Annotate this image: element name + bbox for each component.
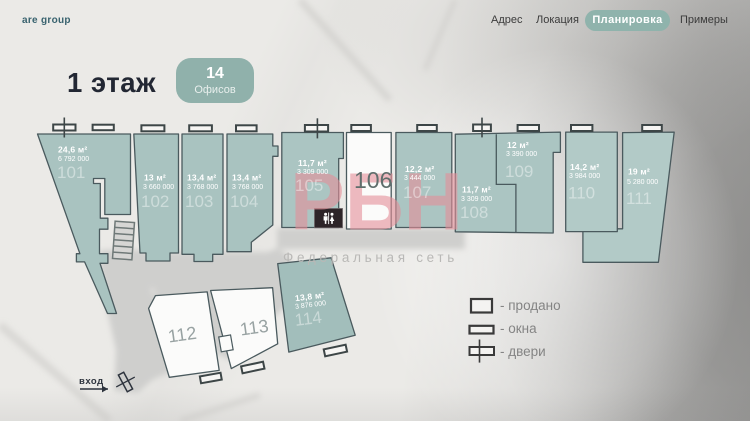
svg-text:5 280 000: 5 280 000: [627, 179, 658, 186]
svg-text:107: 107: [403, 183, 431, 202]
svg-text:102: 102: [141, 192, 169, 211]
svg-text:- двери: - двери: [500, 344, 546, 359]
svg-text:14,2 м²: 14,2 м²: [570, 162, 599, 172]
svg-text:110: 110: [568, 184, 595, 203]
svg-text:вход: вход: [79, 376, 104, 387]
svg-text:114: 114: [294, 308, 323, 330]
svg-text:13,4 м²: 13,4 м²: [187, 173, 216, 183]
svg-text:12 м²: 12 м²: [507, 140, 529, 150]
svg-text:6 792 000: 6 792 000: [58, 156, 89, 163]
svg-text:101: 101: [57, 163, 85, 182]
svg-text:3 768 000: 3 768 000: [187, 184, 218, 191]
svg-text:113: 113: [239, 316, 270, 340]
svg-text:19 м²: 19 м²: [628, 167, 650, 177]
svg-text:3 660 000: 3 660 000: [143, 184, 174, 191]
svg-text:3 390 000: 3 390 000: [506, 151, 537, 158]
svg-text:13 м²: 13 м²: [144, 173, 166, 183]
svg-text:111: 111: [626, 189, 652, 208]
svg-text:105: 105: [295, 176, 323, 195]
svg-text:106: 106: [354, 167, 392, 193]
svg-text:24,6 м²: 24,6 м²: [58, 145, 87, 155]
svg-text:12,2 м²: 12,2 м²: [405, 164, 434, 174]
svg-text:3 768 000: 3 768 000: [232, 184, 263, 191]
svg-text:13,4 м²: 13,4 м²: [232, 173, 261, 183]
svg-text:108: 108: [460, 203, 488, 222]
svg-text:103: 103: [185, 192, 213, 211]
svg-text:104: 104: [230, 192, 258, 211]
svg-text:3 309 000: 3 309 000: [297, 169, 328, 176]
svg-text:Федеральная сеть: Федеральная сеть: [283, 250, 458, 265]
svg-text:- окна: - окна: [500, 321, 537, 336]
svg-text:112: 112: [167, 323, 198, 347]
svg-text:109: 109: [505, 162, 533, 181]
svg-text:3 444 000: 3 444 000: [404, 175, 435, 182]
svg-text:3 309 000: 3 309 000: [461, 196, 492, 203]
svg-text:3 984 000: 3 984 000: [569, 173, 600, 180]
svg-text:11,7 м²: 11,7 м²: [298, 158, 327, 168]
svg-text:11,7 м²: 11,7 м²: [462, 185, 491, 195]
svg-text:- продано: - продано: [500, 298, 561, 313]
